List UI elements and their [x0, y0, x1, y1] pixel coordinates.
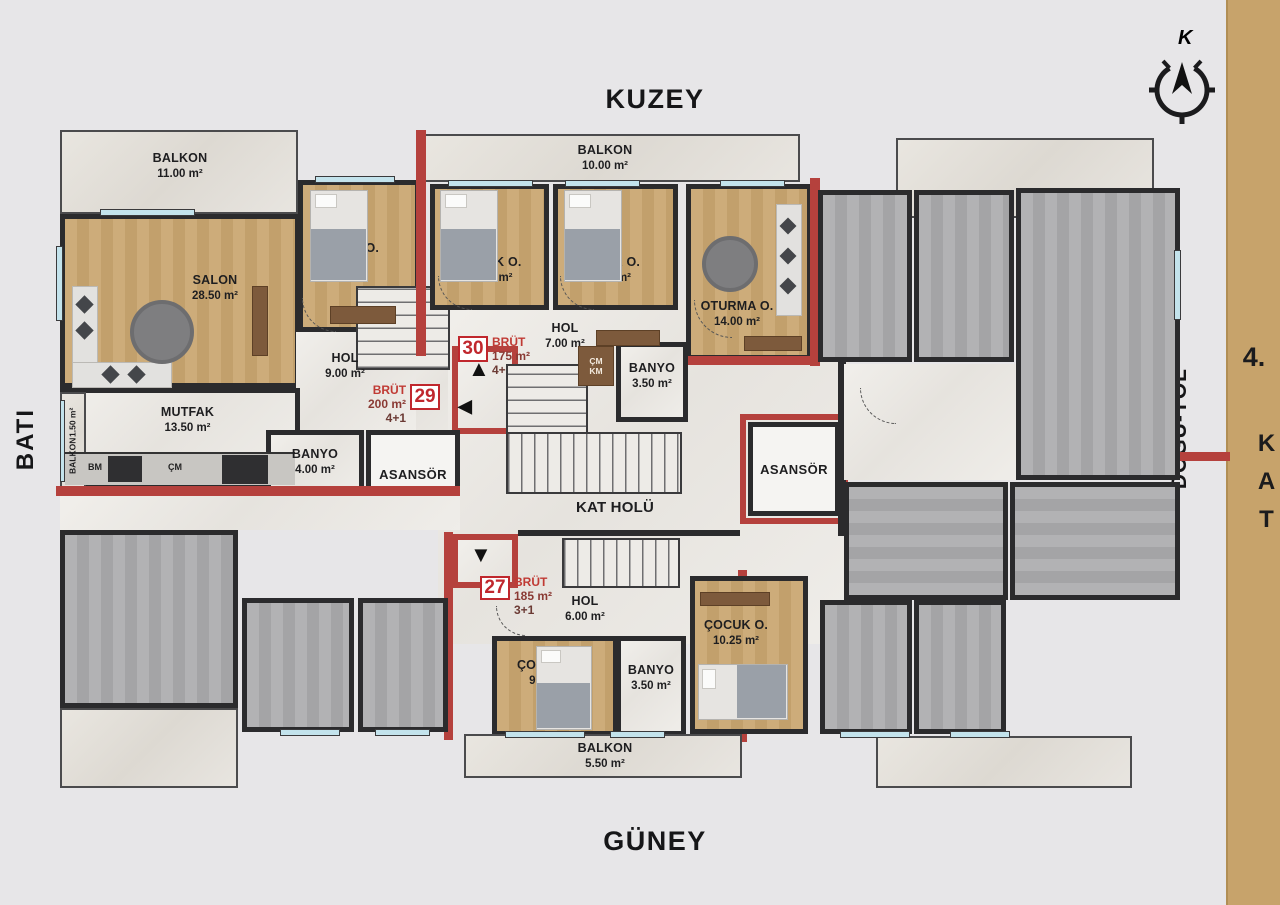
wardrobe-closet: ÇM KM — [578, 346, 614, 386]
neighbor-terrace — [60, 708, 238, 788]
stove-appliance — [222, 455, 268, 484]
window-strip — [610, 731, 665, 738]
round-rug — [130, 300, 194, 364]
main-staircase — [506, 432, 682, 494]
neighbor-room — [820, 600, 912, 734]
neighbor-room — [242, 598, 354, 732]
bathroom-30 — [616, 342, 688, 422]
apartment-27-number: 27 — [480, 576, 510, 600]
bed — [564, 190, 622, 282]
window-strip — [840, 731, 910, 738]
window-strip — [315, 176, 395, 183]
dishwasher-label: ÇM — [168, 462, 182, 472]
round-rug — [702, 236, 758, 292]
red-wall — [56, 486, 460, 496]
floor-plan-page: KUZEY GÜNEY BATI DOĞU-YOL K 4. KAT BALKO… — [0, 0, 1280, 905]
window-strip — [505, 731, 585, 738]
window-strip — [280, 729, 340, 736]
bed — [440, 190, 498, 282]
apartment-30-number: 30 — [458, 336, 488, 362]
floor-number: 4. — [1228, 342, 1280, 373]
washer-label: BM — [88, 462, 102, 472]
wall-segment — [518, 530, 740, 536]
window-strip — [565, 180, 640, 187]
red-wall — [686, 356, 818, 365]
window-strip — [950, 731, 1010, 738]
dresser — [596, 330, 660, 346]
neighbor-room — [358, 598, 448, 732]
washer-appliance — [108, 456, 142, 482]
west-label: BATI — [12, 408, 40, 470]
bed — [310, 190, 368, 282]
neighbor-terrace — [876, 736, 1132, 788]
compass-north-letter: K — [1178, 28, 1194, 49]
window-strip — [720, 180, 785, 187]
bed — [536, 646, 592, 730]
neighbor-room — [914, 190, 1014, 362]
neighbor-room — [818, 190, 912, 362]
elevator-right: ASANSÖR — [748, 422, 840, 516]
balcony-northwest — [60, 130, 298, 214]
compass-icon: K — [1142, 28, 1226, 128]
neighbor-room — [914, 600, 1006, 734]
north-label: KUZEY — [425, 84, 885, 115]
neighbor-hall — [60, 496, 460, 530]
window-strip — [375, 729, 430, 736]
bathroom-27 — [616, 636, 686, 736]
window-strip — [56, 246, 63, 321]
apartment-29-info: BRÜT 200 m² 4+1 — [368, 384, 406, 425]
neighbor-hall — [844, 364, 1016, 480]
dresser — [330, 306, 396, 324]
bed — [698, 664, 788, 720]
neighbor-room — [1016, 188, 1180, 480]
apartment-29-number: 29 — [410, 384, 440, 410]
neighbor-room — [844, 482, 1008, 600]
neighbor-room — [60, 530, 238, 708]
neighbor-room — [1010, 482, 1180, 600]
window-strip — [100, 209, 195, 216]
south-label: GÜNEY — [425, 826, 885, 857]
window-strip — [1174, 250, 1181, 320]
sofa — [72, 362, 172, 388]
tv-unit — [252, 286, 268, 356]
window-strip — [448, 180, 533, 187]
floor-word: KAT — [1228, 430, 1280, 544]
dresser — [700, 592, 770, 606]
red-wall — [416, 130, 426, 356]
floor-side-band: 4. KAT — [1226, 0, 1280, 905]
balcony-south — [464, 734, 742, 778]
apartment-29-tag: BRÜT 200 m² 4+1 29 — [368, 384, 440, 425]
balcony-north — [424, 134, 800, 182]
dresser — [744, 336, 802, 351]
stairs-unit27 — [562, 538, 680, 588]
